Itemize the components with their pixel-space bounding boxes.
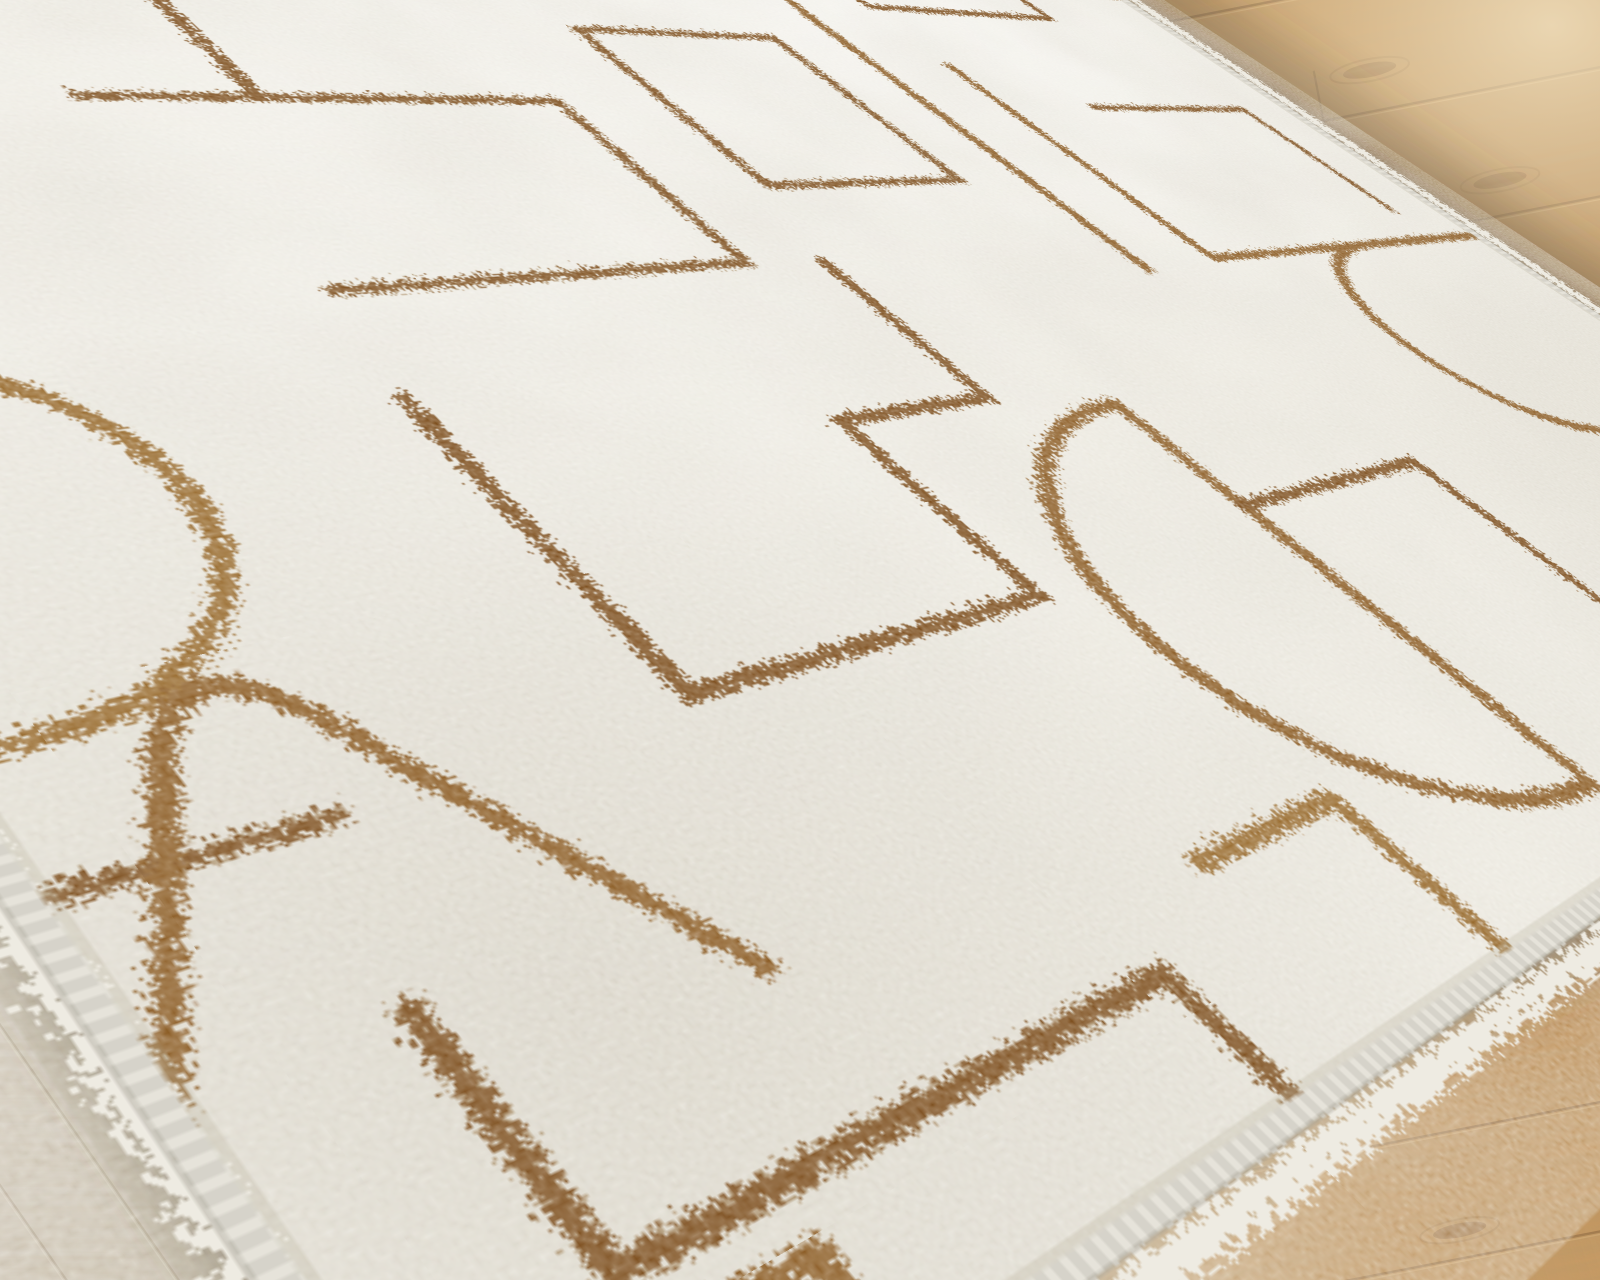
rug — [0, 0, 1600, 1280]
rug-surface — [0, 0, 1600, 1280]
rug-product-photo: Corner view of an ivory high-pile rug wi… — [0, 0, 1600, 1280]
